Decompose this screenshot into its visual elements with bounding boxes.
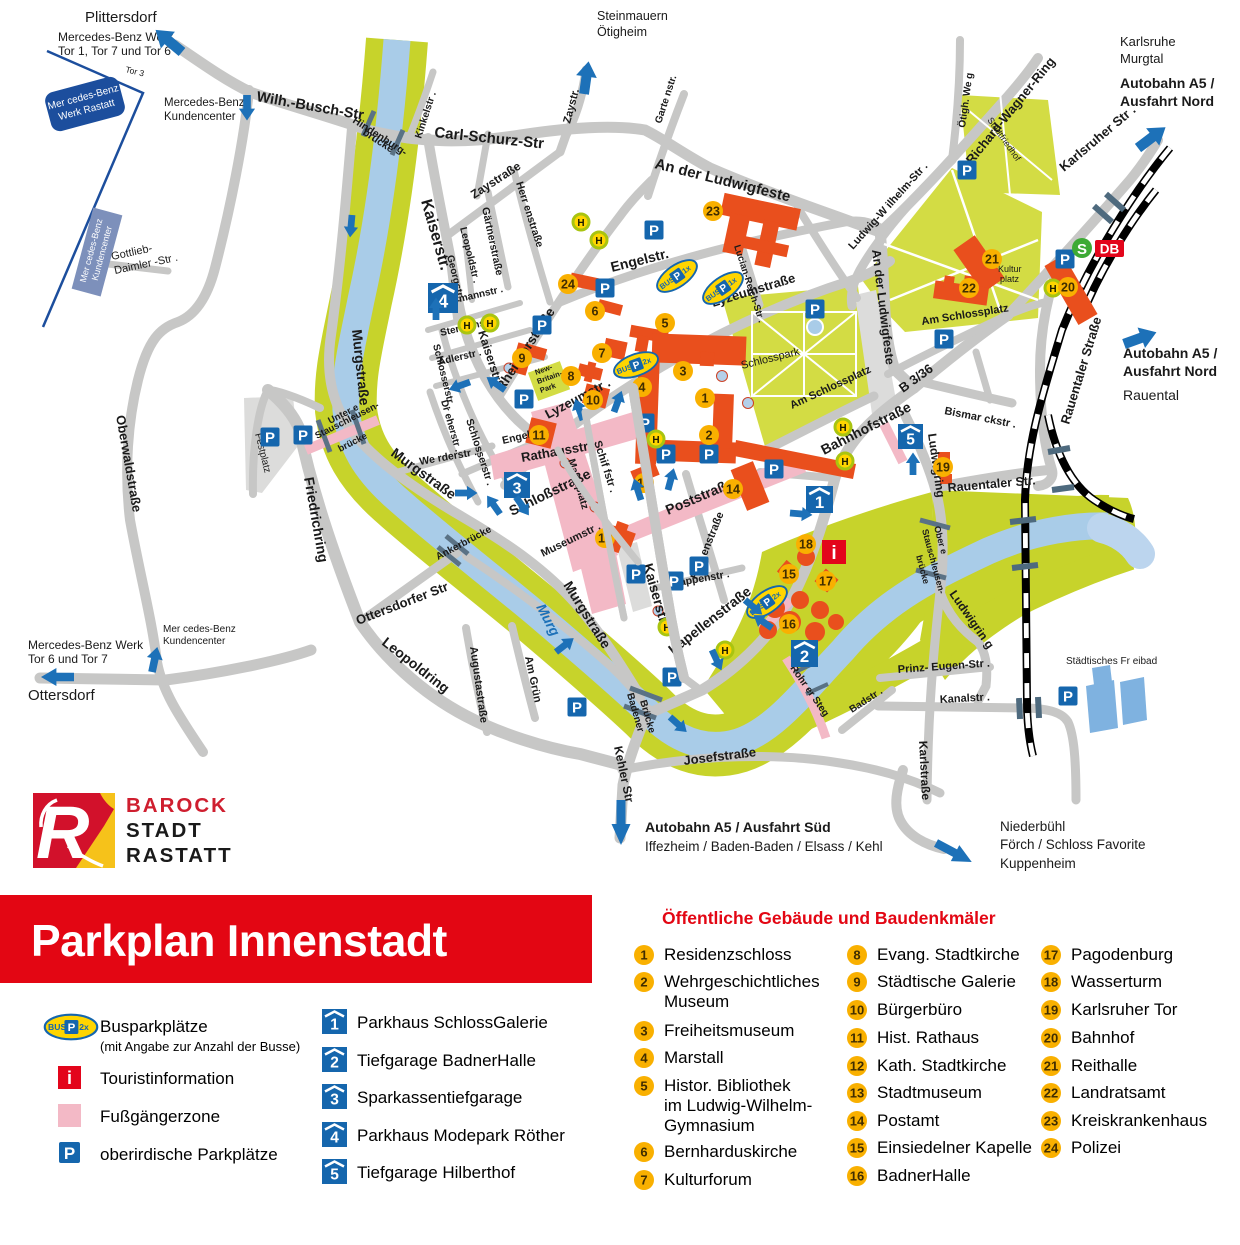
svg-text:Histor. Bibliothek: Histor. Bibliothek: [664, 1076, 791, 1095]
svg-text:Hist. Rathaus: Hist. Rathaus: [877, 1028, 979, 1047]
svg-text:Autobahn A5 / Ausfahrt Süd: Autobahn A5 / Ausfahrt Süd: [645, 819, 831, 835]
svg-text:18: 18: [799, 537, 813, 551]
svg-text:Parkplan Innenstadt: Parkplan Innenstadt: [31, 917, 447, 966]
svg-text:4: 4: [639, 380, 646, 394]
svg-text:5: 5: [640, 1079, 647, 1094]
svg-text:22: 22: [962, 281, 976, 295]
svg-text:Karlsruhe: Karlsruhe: [1120, 34, 1176, 49]
svg-text:20: 20: [1044, 1031, 1058, 1046]
svg-text:BUS: BUS: [48, 1022, 66, 1032]
svg-text:1: 1: [815, 493, 824, 512]
svg-text:Parkhaus Modepark Röther: Parkhaus Modepark Röther: [357, 1126, 565, 1145]
svg-text:Kundencenter: Kundencenter: [163, 636, 226, 647]
svg-text:P: P: [64, 1144, 75, 1163]
svg-text:Karlsruher Tor: Karlsruher Tor: [1071, 1000, 1178, 1019]
svg-text:4: 4: [330, 1130, 339, 1147]
svg-text:9: 9: [853, 975, 860, 990]
svg-text:14: 14: [726, 482, 740, 496]
svg-text:Polizei: Polizei: [1071, 1138, 1121, 1157]
svg-text:4: 4: [640, 1051, 648, 1066]
svg-text:2: 2: [800, 647, 809, 666]
svg-text:Bürgerbüro: Bürgerbüro: [877, 1000, 962, 1019]
svg-text:13: 13: [850, 1086, 864, 1101]
svg-text:Ötigheim: Ötigheim: [597, 25, 647, 39]
svg-text:Kulturforum: Kulturforum: [664, 1170, 752, 1189]
svg-text:Städtische Galerie: Städtische Galerie: [877, 972, 1016, 991]
svg-text:Kreiskrankenhaus: Kreiskrankenhaus: [1071, 1111, 1207, 1130]
svg-text:Autobahn A5 /: Autobahn A5 /: [1123, 345, 1217, 361]
svg-text:Parkhaus SchlossGalerie: Parkhaus SchlossGalerie: [357, 1013, 548, 1032]
svg-text:Ottersdorf: Ottersdorf: [28, 687, 96, 704]
svg-text:19: 19: [1044, 1003, 1058, 1018]
svg-text:24: 24: [1044, 1141, 1059, 1156]
svg-text:Residenzschloss: Residenzschloss: [664, 945, 792, 964]
svg-text:Mer cedes-Benz: Mer cedes-Benz: [163, 624, 236, 635]
svg-text:Rauental: Rauental: [1123, 387, 1179, 403]
svg-text:(mit Angabe zur Anzahl der Bus: (mit Angabe zur Anzahl der Busse): [100, 1039, 300, 1054]
svg-text:Tiefgarage BadnerHalle: Tiefgarage BadnerHalle: [357, 1051, 536, 1070]
svg-text:6: 6: [640, 1145, 647, 1160]
svg-text:Niederbühl: Niederbühl: [1000, 819, 1065, 834]
svg-text:DB: DB: [1100, 242, 1120, 257]
svg-text:Ausfahrt Nord: Ausfahrt Nord: [1120, 93, 1214, 109]
svg-text:Iffezheim / Baden-Baden / Elsa: Iffezheim / Baden-Baden / Elsass / Kehl: [645, 839, 883, 854]
svg-text:Förch / Schloss Favorite: Förch / Schloss Favorite: [1000, 837, 1146, 852]
svg-text:Steinmauern: Steinmauern: [597, 9, 668, 23]
svg-text:14: 14: [850, 1114, 865, 1129]
svg-text:12: 12: [850, 1059, 864, 1074]
svg-text:Ausfahrt Nord: Ausfahrt Nord: [1123, 363, 1217, 379]
svg-text:2: 2: [330, 1055, 339, 1072]
svg-text:21: 21: [1044, 1059, 1058, 1074]
svg-text:3: 3: [330, 1092, 339, 1109]
svg-text:P: P: [68, 1022, 76, 1034]
svg-text:17: 17: [1044, 948, 1058, 963]
svg-text:10: 10: [850, 1003, 864, 1018]
svg-text:Sparkassentiefgarage: Sparkassentiefgarage: [357, 1088, 522, 1107]
svg-text:Postamt: Postamt: [877, 1111, 940, 1130]
svg-text:Kuppenheim: Kuppenheim: [1000, 856, 1076, 871]
svg-text:7: 7: [640, 1173, 647, 1188]
svg-text:5: 5: [662, 316, 669, 330]
svg-text:3: 3: [680, 364, 687, 378]
svg-text:Plittersdorf: Plittersdorf: [85, 9, 158, 26]
svg-text:1: 1: [330, 1017, 339, 1034]
svg-text:Freiheitsmuseum: Freiheitsmuseum: [664, 1021, 794, 1040]
svg-text:Reithalle: Reithalle: [1071, 1056, 1137, 1075]
svg-text:24: 24: [561, 277, 575, 291]
svg-text:Wehrgeschichtliches: Wehrgeschichtliches: [664, 972, 820, 991]
svg-text:Kultur: Kultur: [998, 264, 1022, 274]
svg-text:im Ludwig-Wilhelm-: im Ludwig-Wilhelm-: [664, 1096, 812, 1115]
svg-text:Pagodenburg: Pagodenburg: [1071, 945, 1173, 964]
svg-text:Autobahn A5 /: Autobahn A5 /: [1120, 75, 1214, 91]
svg-text:2x: 2x: [79, 1022, 89, 1032]
svg-text:11: 11: [850, 1031, 864, 1046]
svg-text:STADT: STADT: [126, 819, 203, 842]
svg-text:4: 4: [438, 291, 449, 312]
svg-text:Kath. Stadtkirche: Kath. Stadtkirche: [877, 1056, 1006, 1075]
svg-text:5: 5: [906, 432, 915, 449]
svg-text:8: 8: [568, 369, 575, 383]
svg-text:Mercedes-Benz: Mercedes-Benz: [164, 97, 245, 109]
svg-text:Tiefgarage Hilberthof: Tiefgarage Hilberthof: [357, 1163, 515, 1182]
svg-text:Kundencenter: Kundencenter: [164, 111, 236, 123]
svg-text:Bernharduskirche: Bernharduskirche: [664, 1142, 797, 1161]
svg-text:16: 16: [782, 617, 796, 631]
svg-text:i: i: [67, 1068, 72, 1088]
svg-text:BAROCK: BAROCK: [126, 794, 228, 817]
svg-text:15: 15: [782, 567, 796, 581]
svg-text:Touristinformation: Touristinformation: [100, 1069, 234, 1088]
svg-text:Bahnhof: Bahnhof: [1071, 1028, 1135, 1047]
svg-text:RASTATT: RASTATT: [126, 844, 233, 867]
svg-text:8: 8: [853, 948, 860, 963]
svg-text:Einsiedelner Kapelle: Einsiedelner Kapelle: [877, 1138, 1032, 1157]
svg-text:Mercedes-Benz Werk: Mercedes-Benz Werk: [28, 638, 144, 652]
svg-text:Marstall: Marstall: [664, 1048, 724, 1067]
svg-text:platz: platz: [1000, 274, 1020, 284]
svg-text:Busparkplätze: Busparkplätze: [100, 1017, 208, 1036]
svg-text:Öffentliche Gebäude und Bauden: Öffentliche Gebäude und Baudenkmäler: [662, 908, 996, 928]
svg-text:Evang. Stadtkirche: Evang. Stadtkirche: [877, 945, 1020, 964]
svg-text:i: i: [831, 543, 836, 564]
svg-text:11: 11: [532, 428, 545, 442]
svg-text:16: 16: [850, 1169, 864, 1184]
svg-text:1: 1: [702, 391, 709, 405]
svg-text:2: 2: [706, 428, 713, 442]
svg-text:7: 7: [599, 346, 606, 360]
svg-text:Landratsamt: Landratsamt: [1071, 1083, 1166, 1102]
svg-text:oberirdische Parkplätze: oberirdische Parkplätze: [100, 1145, 278, 1164]
svg-text:5: 5: [330, 1167, 339, 1184]
svg-text:R: R: [36, 791, 89, 874]
svg-text:Tor 6 und Tor 7: Tor 6 und Tor 7: [28, 652, 108, 666]
svg-text:Murgtal: Murgtal: [1120, 51, 1163, 66]
svg-text:23: 23: [706, 204, 720, 218]
svg-text:17: 17: [819, 574, 833, 588]
svg-text:Gymnasium: Gymnasium: [664, 1116, 755, 1135]
svg-text:BadnerHalle: BadnerHalle: [877, 1166, 971, 1185]
svg-text:3: 3: [640, 1024, 647, 1039]
svg-text:20: 20: [1061, 280, 1075, 294]
svg-text:15: 15: [850, 1141, 864, 1156]
svg-text:19: 19: [936, 460, 950, 474]
svg-text:1: 1: [640, 948, 647, 963]
svg-text:Fußgängerzone: Fußgängerzone: [100, 1107, 220, 1126]
svg-text:18: 18: [1044, 975, 1058, 990]
svg-text:23: 23: [1044, 1114, 1058, 1129]
svg-text:Stadtmuseum: Stadtmuseum: [877, 1083, 982, 1102]
svg-text:Museum: Museum: [664, 992, 729, 1011]
svg-text:Städtisches Fr eibad: Städtisches Fr eibad: [1066, 656, 1157, 667]
svg-text:2: 2: [640, 975, 647, 990]
svg-text:10: 10: [586, 393, 600, 407]
svg-text:Wasserturm: Wasserturm: [1071, 972, 1162, 991]
svg-text:6: 6: [592, 304, 599, 318]
svg-text:Tor 1, Tor 7 und Tor 6: Tor 1, Tor 7 und Tor 6: [58, 44, 171, 58]
svg-text:21: 21: [985, 252, 999, 266]
svg-text:9: 9: [519, 351, 526, 365]
svg-text:S: S: [1077, 241, 1087, 258]
svg-text:3: 3: [513, 479, 522, 497]
svg-text:22: 22: [1044, 1086, 1058, 1101]
